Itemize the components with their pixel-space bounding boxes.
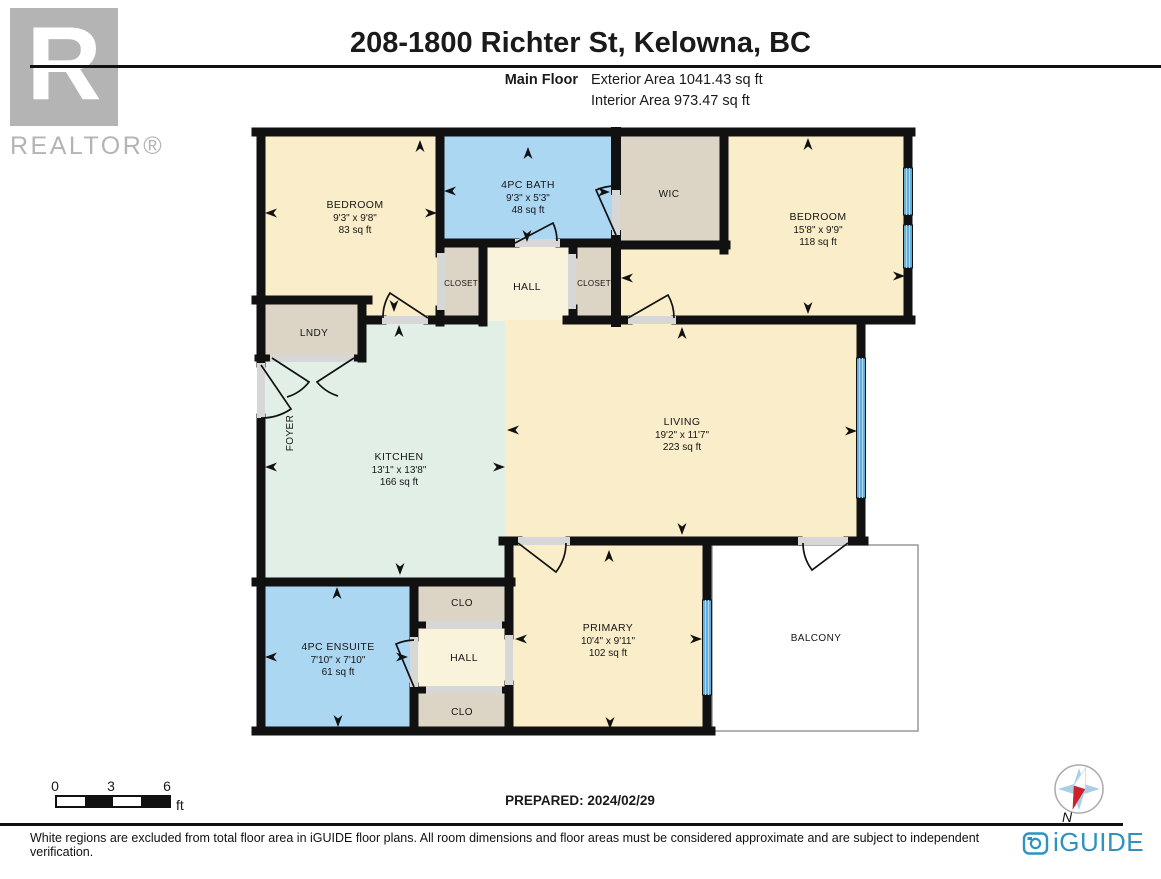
realtor-logo-r: R xyxy=(26,12,101,116)
floor-plan-page: R REALTOR® 208-1800 Richter St, Kelowna,… xyxy=(0,0,1161,879)
scale-tick-0: 0 xyxy=(51,778,59,794)
primary-dims: 10'4" x 9'11" xyxy=(581,636,636,647)
foyer-label: FOYER xyxy=(285,415,296,451)
exterior-area-label: Exterior Area 1041.43 sq ft xyxy=(591,72,763,88)
prepared-date: PREPARED: 2024/02/29 xyxy=(450,793,710,808)
realtor-logo-word: REALTOR® xyxy=(10,132,164,161)
scale-bar-segments xyxy=(55,795,171,808)
scale-tick-3: 3 xyxy=(107,778,115,794)
bath-dims: 9'3" x 5'3" xyxy=(506,193,550,204)
floor-plan-drawing: BEDROOM 9'3" x 9'8" 83 sq ft 4PC BATH 9'… xyxy=(248,115,928,743)
wic-label: WIC xyxy=(659,189,680,200)
hall-bottom-label: HALL xyxy=(450,652,478,664)
bedroom2-label: BEDROOM xyxy=(789,211,846,223)
primary-area: 102 sq ft xyxy=(589,648,628,659)
bedroom1-dims: 9'3" x 9'8" xyxy=(333,213,377,224)
living-dims: 19'2" x 11'7" xyxy=(655,430,710,441)
hall-top-label: HALL xyxy=(513,281,541,293)
kitchen-area: 166 sq ft xyxy=(380,477,419,488)
bath-area: 48 sq ft xyxy=(512,205,545,216)
clo-bottom-label: CLO xyxy=(451,707,473,718)
interior-area-label: Interior Area 973.47 sq ft xyxy=(591,93,750,109)
ensuite-dims: 7'10" x 7'10" xyxy=(311,655,366,666)
closet-left-label: CLOSET xyxy=(444,279,478,288)
ensuite-label: 4PC ENSUITE xyxy=(301,641,374,653)
scale-bar-ticks: 0 3 6 xyxy=(40,778,171,795)
iguide-logo-text: iGUIDE xyxy=(1053,827,1144,858)
iguide-logo: iGUIDE xyxy=(1022,827,1144,858)
iguide-camera-icon xyxy=(1022,830,1049,856)
scale-tick-6: 6 xyxy=(163,778,171,794)
lndy-label: LNDY xyxy=(300,328,328,339)
floor-name-label: Main Floor xyxy=(400,72,578,88)
disclaimer-text: White regions are excluded from total fl… xyxy=(30,831,1030,859)
bedroom2-dims: 15'8" x 9'9" xyxy=(793,225,843,236)
kitchen-dims: 13'1" x 13'8" xyxy=(372,465,427,476)
living-label: LIVING xyxy=(664,416,701,428)
bedroom2-area: 118 sq ft xyxy=(799,237,837,248)
primary-label: PRIMARY xyxy=(583,622,633,634)
footer-divider-line xyxy=(0,823,1123,826)
scale-bar: 0 3 6 ft xyxy=(40,778,171,808)
kitchen-label: KITCHEN xyxy=(375,451,424,463)
scale-unit-label: ft xyxy=(176,797,184,813)
header-divider-line xyxy=(30,65,1161,68)
clo-top-label: CLO xyxy=(451,598,473,609)
bedroom1-area: 83 sq ft xyxy=(339,225,372,236)
compass-icon: N xyxy=(1048,759,1112,825)
page-title: 208-1800 Richter St, Kelowna, BC xyxy=(150,27,1011,60)
balcony-label: BALCONY xyxy=(791,633,842,644)
bath-label: 4PC BATH xyxy=(501,179,555,191)
ensuite-area: 61 sq ft xyxy=(322,667,355,678)
bedroom1-label: BEDROOM xyxy=(326,199,383,211)
realtor-logo: R REALTOR® xyxy=(10,8,164,161)
closet-right-label: CLOSET xyxy=(577,279,611,288)
living-area: 223 sq ft xyxy=(663,442,702,453)
